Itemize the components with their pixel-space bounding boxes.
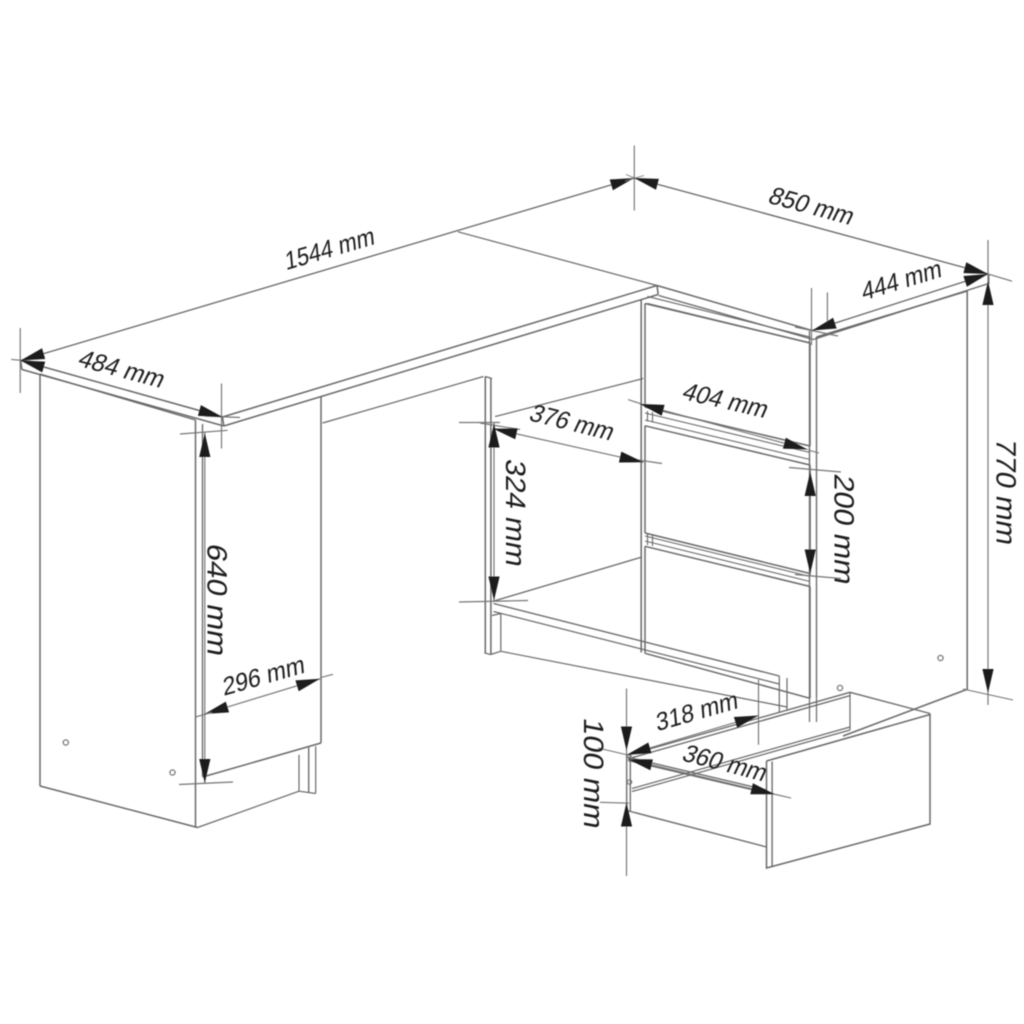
svg-text:324 mm: 324 mm [500, 457, 532, 570]
svg-text:770 mm: 770 mm [991, 436, 1023, 548]
svg-text:200 mm: 200 mm [829, 472, 861, 588]
svg-text:100 mm: 100 mm [578, 716, 610, 832]
svg-text:640 mm: 640 mm [201, 541, 233, 659]
